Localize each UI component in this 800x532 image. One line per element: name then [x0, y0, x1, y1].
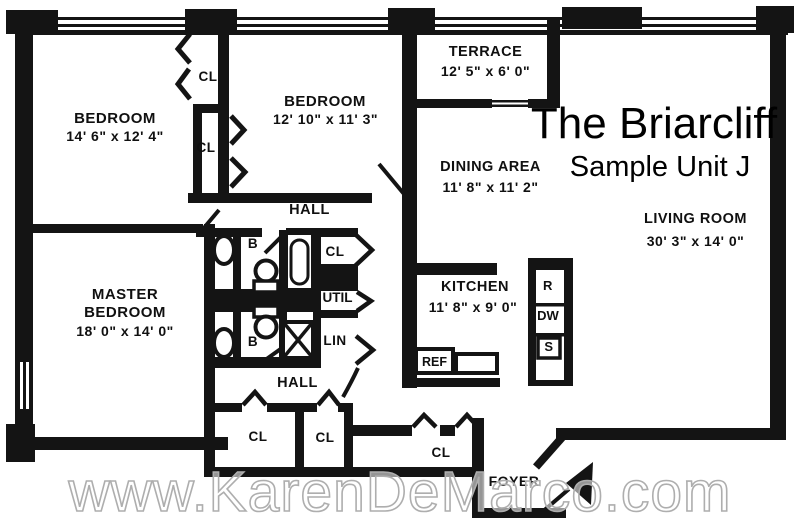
hall-lower-closet1-label: CL	[242, 430, 274, 444]
range-label: R	[537, 279, 559, 293]
bedroom1-label: BEDROOM	[50, 111, 180, 127]
terrace-dims: 12' 5" x 6' 0"	[423, 64, 548, 79]
utility-closet-label: UTIL	[319, 291, 356, 305]
toilet-icon	[254, 306, 278, 338]
watermark-text: www.KarenDeMarco.com	[0, 464, 800, 521]
dining-area-label: DINING AREA	[428, 160, 553, 175]
linen-closet-label: LIN	[317, 334, 353, 348]
window-slit	[26, 362, 29, 409]
pillar	[388, 8, 435, 31]
master-bedroom-dims: 18' 0" x 14' 0"	[50, 324, 200, 339]
pillar	[185, 9, 237, 33]
hall-lower-label: HALL	[265, 376, 330, 391]
bifold-door-icon	[178, 34, 190, 99]
floor-plan-drawing	[0, 0, 800, 532]
hall-upper-label: HALL	[277, 203, 342, 218]
dining-area-dims: 11' 8" x 11' 2"	[424, 180, 557, 195]
kitchen-dims: 11' 8" x 9' 0"	[414, 300, 532, 315]
terrace-label: TERRACE	[423, 45, 548, 60]
hall-door-arc	[343, 368, 358, 397]
master-bedroom-label-line1: MASTER	[55, 287, 195, 303]
bedroom1-closet-label: CL	[193, 70, 223, 84]
floor-plan: BEDROOM 14' 6" x 12' 4" BEDROOM 12' 10" …	[0, 0, 800, 532]
bath-lower-label: B	[243, 335, 263, 349]
sink-label: S	[538, 340, 560, 354]
living-room-dims: 30' 3" x 14' 0"	[624, 234, 767, 249]
hall-lower-closet2-label: CL	[309, 431, 341, 445]
dishwasher-label: DW	[533, 309, 563, 323]
page-subtitle: Sample Unit J	[545, 153, 775, 182]
foyer-closet-label: CL	[424, 446, 458, 460]
closet-door-chevrons	[231, 116, 245, 187]
bedroom2-label: BEDROOM	[255, 94, 395, 110]
window-slit	[20, 362, 23, 409]
bathtub-icon	[286, 233, 313, 290]
sink-icon	[214, 236, 234, 264]
counter-box	[456, 354, 497, 373]
bedroom2-closet-label: CL	[191, 141, 221, 155]
sink-icon	[214, 329, 234, 357]
living-room-label: LIVING ROOM	[628, 212, 763, 227]
kitchen-label: KITCHEN	[424, 280, 526, 295]
bedroom1-dims: 14' 6" x 12' 4"	[40, 129, 190, 144]
page-title: The Briarcliff	[520, 102, 788, 146]
toilet-icon	[254, 261, 278, 293]
bedroom2-door-swing	[379, 164, 404, 194]
bath-upper-label: B	[243, 237, 263, 251]
core-closet-door-chevrons	[355, 234, 373, 364]
bedroom2-dims: 12' 10" x 11' 3"	[248, 112, 403, 127]
pillar	[562, 7, 642, 29]
hall-upper-closet-label: CL	[320, 245, 350, 259]
master-bedroom-label-line2: BEDROOM	[55, 305, 195, 321]
refrigerator-label: REF	[417, 356, 452, 369]
window-wall	[6, 6, 794, 35]
shower-x-icon	[283, 322, 313, 358]
